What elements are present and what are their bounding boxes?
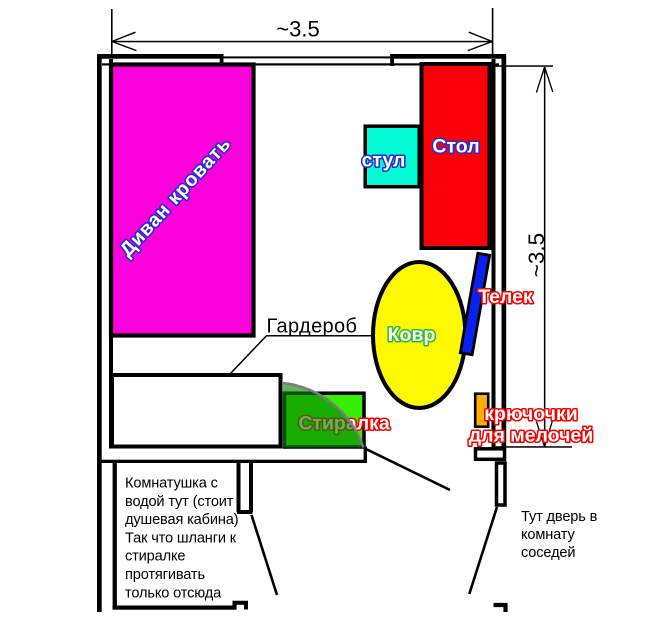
svg-text:Стол: Стол [432, 136, 479, 158]
svg-text:комнату: комнату [521, 527, 576, 543]
svg-text:для мелочей: для мелочей [469, 424, 594, 446]
svg-text:Тут дверь в: Тут дверь в [521, 509, 598, 525]
svg-text:водой тут (стоит: водой тут (стоит [125, 494, 234, 510]
svg-text:Гардероб: Гардероб [267, 316, 358, 338]
svg-text:крючочки: крючочки [484, 403, 577, 425]
svg-text:душевая кабина): душевая кабина) [125, 512, 238, 528]
svg-text:~3.5: ~3.5 [276, 17, 319, 42]
svg-text:Телек: Телек [478, 286, 533, 308]
svg-text:Комнатушка с: Комнатушка с [125, 476, 218, 492]
svg-text:протягивать: протягивать [125, 567, 205, 583]
svg-text:~3.5: ~3.5 [524, 233, 549, 277]
svg-text:стул: стул [362, 150, 406, 172]
svg-text:соседей: соседей [521, 545, 575, 561]
svg-text:Ковр: Ковр [388, 324, 436, 346]
svg-text:только отсюда: только отсюда [125, 585, 222, 601]
svg-text:стиралке: стиралке [125, 549, 185, 565]
svg-text:Так что шланги к: Так что шланги к [125, 530, 237, 546]
